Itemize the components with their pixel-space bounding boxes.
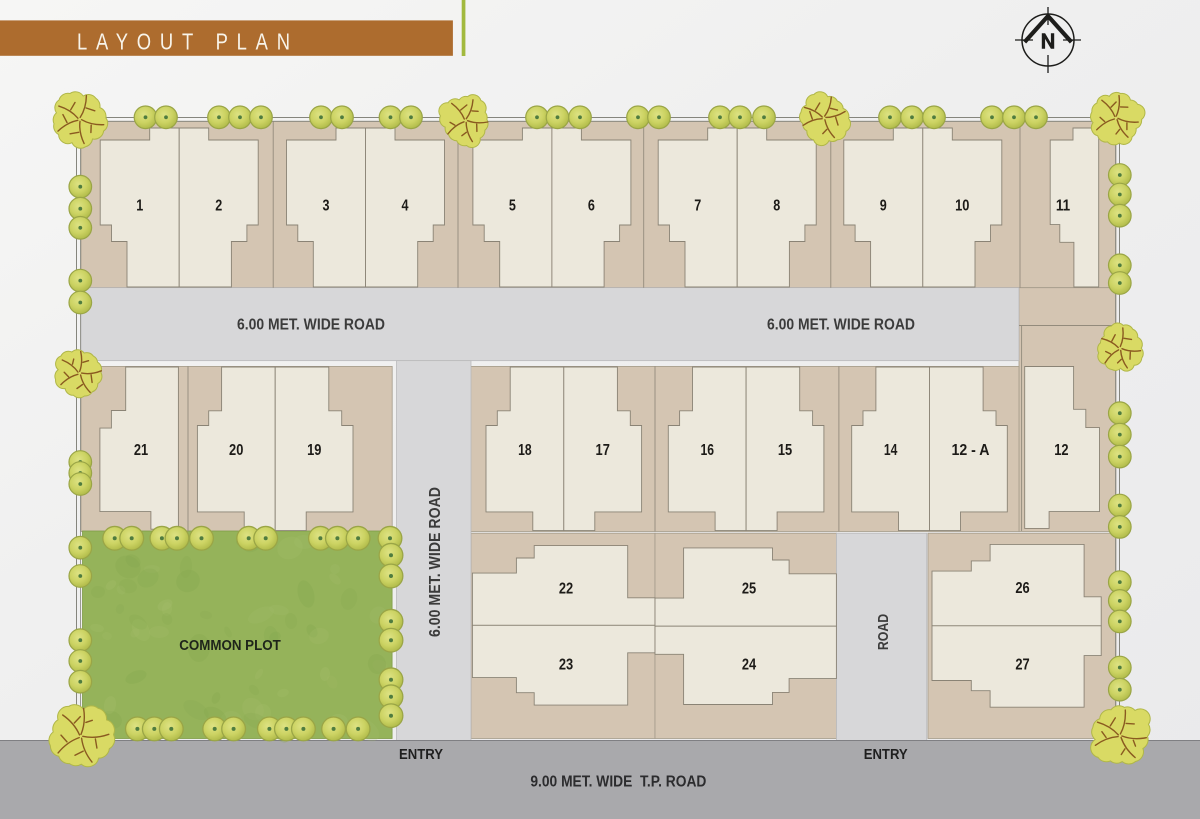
svg-text:9.00 MET. WIDE T.P. ROAD: 9.00 MET. WIDE T.P. ROAD	[530, 774, 706, 791]
svg-text:LAYOUT PLAN: LAYOUT PLAN	[77, 30, 299, 55]
svg-text:27: 27	[1015, 657, 1029, 674]
svg-text:26: 26	[1015, 580, 1029, 597]
svg-text:ENTRY: ENTRY	[399, 746, 443, 763]
svg-text:6.00 MET. WIDE ROAD: 6.00 MET. WIDE ROAD	[427, 487, 444, 637]
svg-text:9: 9	[880, 198, 887, 215]
svg-text:7: 7	[694, 198, 701, 215]
svg-text:4: 4	[402, 198, 409, 215]
svg-text:8: 8	[773, 198, 780, 215]
svg-text:5: 5	[509, 198, 516, 215]
svg-text:25: 25	[742, 581, 756, 598]
svg-text:21: 21	[134, 442, 148, 459]
svg-text:12 - A: 12 - A	[952, 442, 990, 459]
svg-text:1: 1	[136, 198, 143, 215]
svg-text:3: 3	[323, 198, 330, 215]
svg-text:22: 22	[559, 581, 573, 598]
svg-text:11: 11	[1056, 198, 1070, 215]
svg-text:19: 19	[307, 442, 321, 459]
svg-text:COMMON PLOT: COMMON PLOT	[179, 638, 281, 654]
svg-text:10: 10	[955, 198, 969, 215]
svg-text:ROAD: ROAD	[875, 614, 892, 650]
svg-text:12: 12	[1054, 442, 1068, 459]
svg-text:23: 23	[559, 657, 573, 674]
svg-text:2: 2	[215, 198, 222, 215]
svg-text:6.00 MET. WIDE ROAD: 6.00 MET. WIDE ROAD	[237, 317, 385, 334]
svg-text:15: 15	[778, 442, 792, 459]
svg-text:20: 20	[229, 442, 243, 459]
svg-text:14: 14	[884, 442, 898, 459]
svg-text:24: 24	[742, 657, 756, 674]
svg-text:16: 16	[700, 442, 714, 459]
svg-text:ENTRY: ENTRY	[864, 746, 908, 763]
svg-text:17: 17	[596, 442, 610, 459]
svg-text:6: 6	[588, 198, 595, 215]
svg-text:6.00 MET. WIDE ROAD: 6.00 MET. WIDE ROAD	[767, 317, 915, 334]
svg-text:18: 18	[518, 442, 532, 459]
